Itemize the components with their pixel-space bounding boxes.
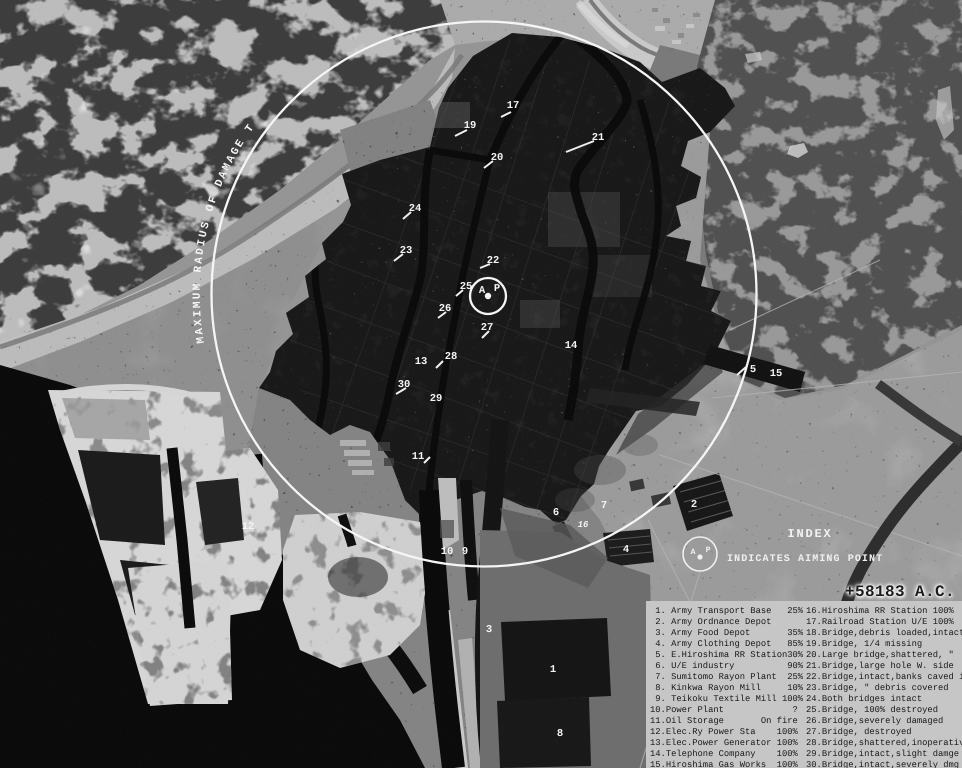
svg-text:29.Bridge,intact,slight damge: 29.Bridge,intact,slight damge xyxy=(806,749,959,759)
svg-text:17.Railroad Station U/E 100%: 17.Railroad Station U/E 100% xyxy=(806,617,955,627)
svg-text:1: 1 xyxy=(550,664,556,676)
svg-text:4. Army Clothing Depot 85%: 4. Army Clothing Depot 85% xyxy=(650,639,804,649)
svg-text:+58183 A.C.: +58183 A.C. xyxy=(845,583,955,601)
svg-text:2: 2 xyxy=(691,499,697,511)
svg-text:25.Bridge, 100% destroyed: 25.Bridge, 100% destroyed xyxy=(806,705,938,715)
svg-text:18.Bridge,debris loaded,intact: 18.Bridge,debris loaded,intact xyxy=(806,628,962,638)
svg-text:7: 7 xyxy=(601,500,607,512)
svg-text:6: 6 xyxy=(553,507,559,519)
svg-text:26.Bridge,severely damaged: 26.Bridge,severely damaged xyxy=(806,716,943,726)
svg-text:2. Army Ordnance Depot: 2. Army Ordnance Depot xyxy=(650,617,771,627)
svg-text:12: 12 xyxy=(242,521,255,533)
svg-text:7. Sumitomo Rayon Plant 25%: 7. Sumitomo Rayon Plant 25% xyxy=(650,672,804,682)
svg-text:22.Bridge,intact,banks caved i: 22.Bridge,intact,banks caved in xyxy=(806,672,962,682)
svg-text:6. U/E industry 90%: 6. U/E industry 90% xyxy=(650,661,804,671)
svg-text:9: 9 xyxy=(462,546,468,558)
svg-text:16: 16 xyxy=(578,520,589,530)
svg-text:28: 28 xyxy=(445,351,458,363)
svg-text:24.Both bridges intact: 24.Both bridges intact xyxy=(806,694,922,704)
svg-text:4: 4 xyxy=(623,544,629,556)
svg-text:15: 15 xyxy=(770,368,783,380)
svg-text:A: A xyxy=(479,285,486,297)
svg-text:5. E.Hiroshima RR Station30%: 5. E.Hiroshima RR Station30% xyxy=(650,650,804,660)
svg-text:P: P xyxy=(706,546,711,555)
svg-text:3. Army Food Depot 35%: 3. Army Food Depot 35% xyxy=(650,628,804,638)
svg-text:1. Army Transport Base 25%: 1. Army Transport Base 25% xyxy=(650,606,804,616)
svg-text:INDEX: INDEX xyxy=(787,527,832,541)
svg-text:27.Bridge, destroyed: 27.Bridge, destroyed xyxy=(806,727,912,737)
svg-text:17: 17 xyxy=(507,100,520,112)
svg-text:16.Hiroshima RR Station 100%: 16.Hiroshima RR Station 100% xyxy=(806,606,955,616)
svg-text:21.Bridge,large hole W. side: 21.Bridge,large hole W. side xyxy=(806,661,954,671)
svg-text:13: 13 xyxy=(415,356,428,368)
svg-text:INDICATES AIMING POINT: INDICATES AIMING POINT xyxy=(727,554,883,565)
svg-text:11.Oil Storage On fire: 11.Oil Storage On fire xyxy=(650,716,798,726)
svg-text:28.Bridge,shattered,inoperativ: 28.Bridge,shattered,inoperative xyxy=(806,738,962,748)
svg-text:12.Elec.Ry Power Sta 100%: 12.Elec.Ry Power Sta 100% xyxy=(650,727,799,737)
svg-text:30.Bridge,intact,severely dmg: 30.Bridge,intact,severely dmg xyxy=(806,760,959,768)
svg-text:10.Power Plant ?: 10.Power Plant ? xyxy=(650,705,798,715)
svg-text:19.Bridge, 1/4 missing: 19.Bridge, 1/4 missing xyxy=(806,639,922,649)
svg-text:5: 5 xyxy=(750,364,756,376)
svg-text:29: 29 xyxy=(430,393,443,405)
svg-text:11: 11 xyxy=(412,451,425,463)
svg-text:15.Hiroshima Gas Works 100%: 15.Hiroshima Gas Works 100% xyxy=(650,760,799,768)
svg-text:23.Bridge, " debris covered: 23.Bridge, " debris covered xyxy=(806,683,949,693)
svg-text:A: A xyxy=(691,548,696,557)
svg-text:14: 14 xyxy=(565,340,578,352)
svg-text:9. Teikoku Textile Mill 100%: 9. Teikoku Textile Mill 100% xyxy=(650,694,804,704)
svg-text:14.Telephone Company 100%: 14.Telephone Company 100% xyxy=(650,749,799,759)
svg-text:20.Large bridge,shattered, ": 20.Large bridge,shattered, " xyxy=(806,650,954,660)
svg-text:8. Kinkwa Rayon Mill 10%: 8. Kinkwa Rayon Mill 10% xyxy=(650,683,804,693)
svg-text:8: 8 xyxy=(557,728,563,740)
svg-text:10: 10 xyxy=(441,546,454,558)
svg-text:P: P xyxy=(494,283,500,295)
svg-text:13.Elec.Power Generator 100%: 13.Elec.Power Generator 100% xyxy=(650,738,799,748)
svg-text:3: 3 xyxy=(486,624,492,636)
